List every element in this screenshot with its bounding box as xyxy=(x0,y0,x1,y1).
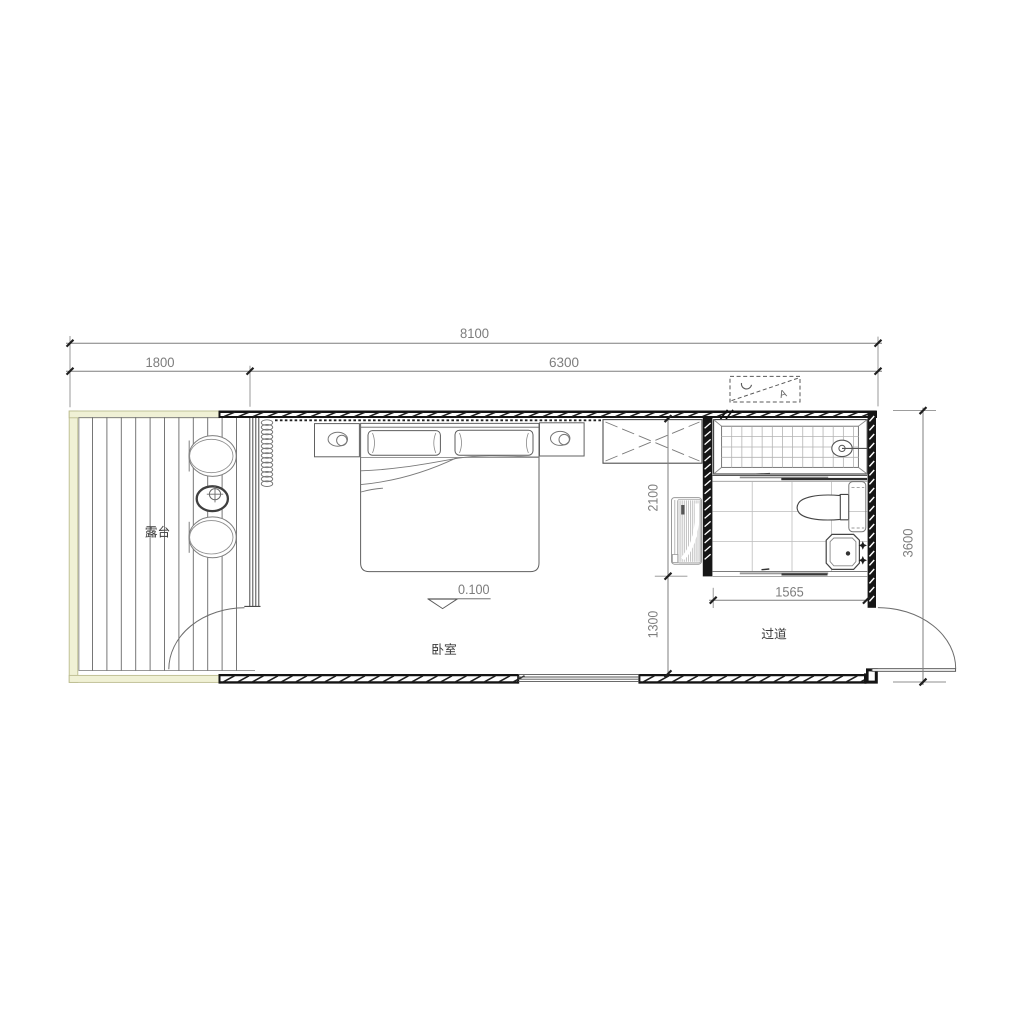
svg-text:8100: 8100 xyxy=(460,326,489,341)
svg-text:过道: 过道 xyxy=(761,626,787,641)
svg-text:3600: 3600 xyxy=(901,528,916,557)
svg-text:卧室: 卧室 xyxy=(431,642,457,657)
svg-text:0.100: 0.100 xyxy=(458,582,490,597)
svg-text:1800: 1800 xyxy=(146,355,175,370)
svg-text:露台: 露台 xyxy=(145,525,171,540)
svg-text:1300: 1300 xyxy=(646,610,661,638)
svg-text:1565: 1565 xyxy=(775,584,804,599)
svg-text:6300: 6300 xyxy=(549,355,579,370)
svg-text:2100: 2100 xyxy=(646,484,661,512)
